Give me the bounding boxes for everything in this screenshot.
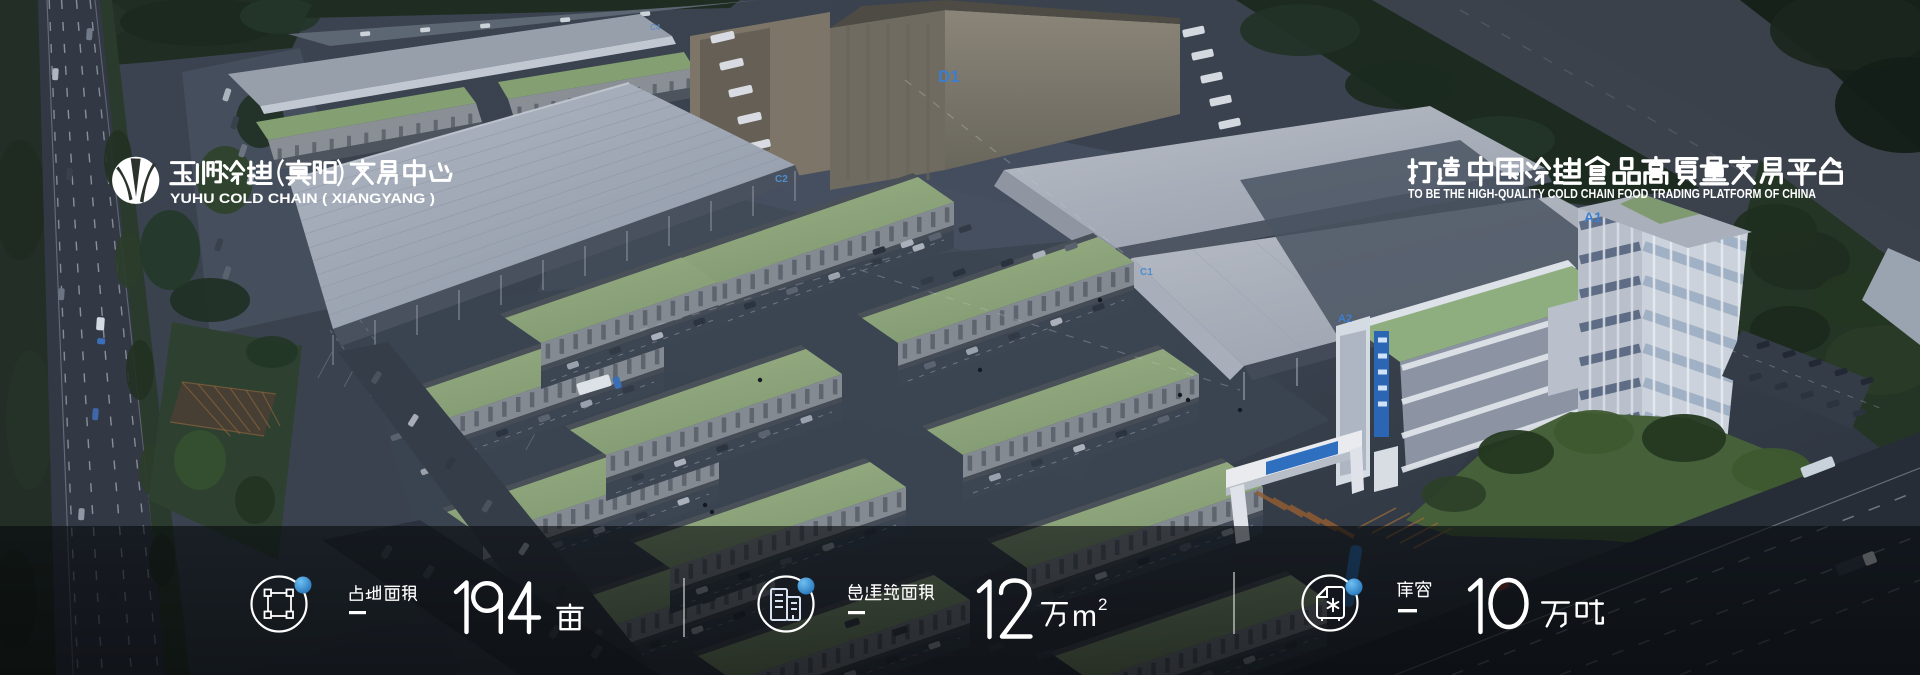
svg-text:YUHU COLD CHAIN ( XIANGYANG ): YUHU COLD CHAIN ( XIANGYANG ) <box>170 191 435 206</box>
svg-text:A1: A1 <box>1584 209 1602 225</box>
svg-text:2: 2 <box>1098 595 1107 614</box>
svg-text:C2: C2 <box>775 174 788 185</box>
svg-text:m: m <box>1072 600 1097 633</box>
svg-text:C4: C4 <box>650 23 661 32</box>
svg-text:C1: C1 <box>1140 267 1153 278</box>
svg-text:D1: D1 <box>938 67 960 86</box>
svg-text:A2: A2 <box>1338 313 1352 325</box>
svg-text:TO BE THE HIGH-QUALITY COLD CH: TO BE THE HIGH-QUALITY COLD CHAIN FOOD T… <box>1408 187 1816 201</box>
